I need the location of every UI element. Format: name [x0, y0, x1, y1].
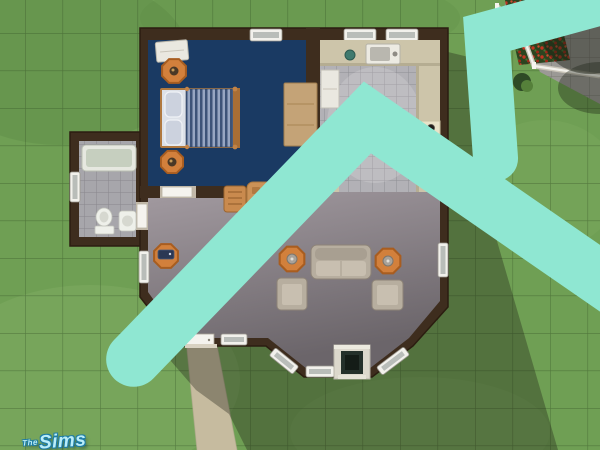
tsr-watermark: The Sims Resource — [0, 0, 600, 450]
tsr-prefix: The — [22, 438, 38, 446]
game-viewport: The Sims Resource — [0, 0, 600, 450]
tsr-logo-house-icon — [59, 0, 600, 450]
